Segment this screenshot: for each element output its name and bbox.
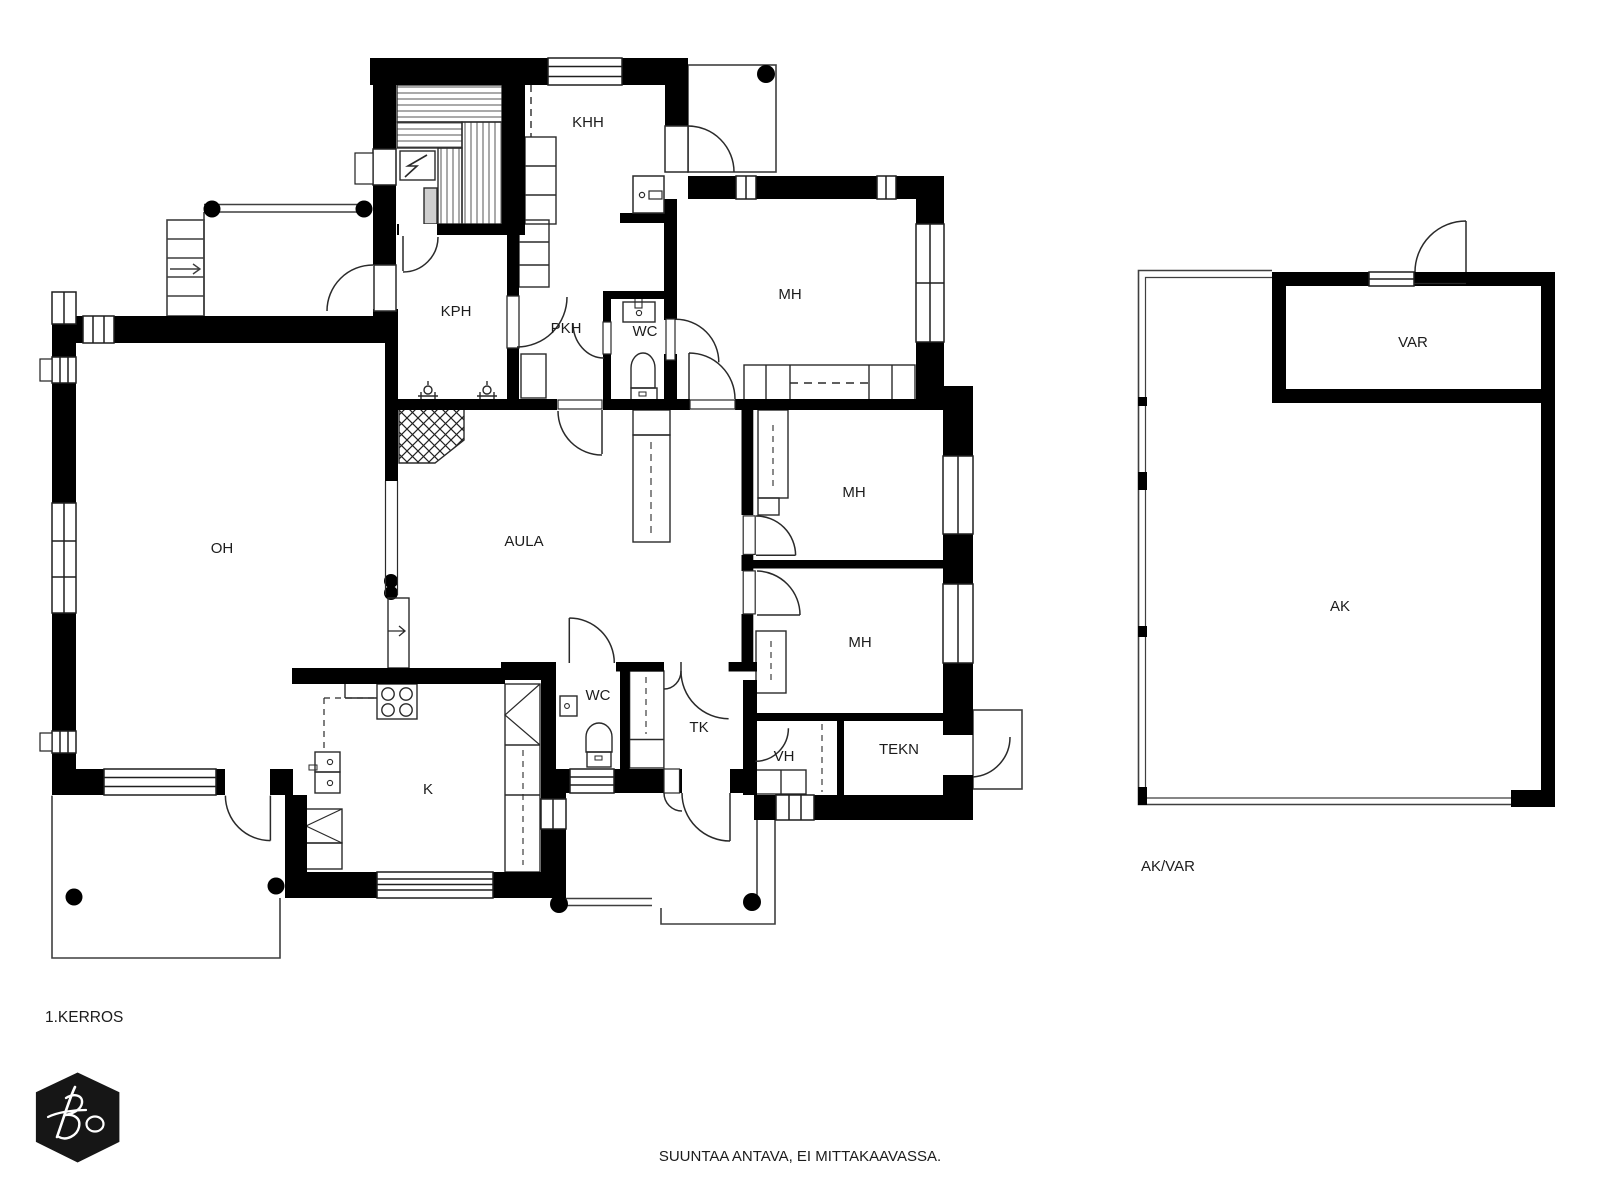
svg-text:AK: AK	[1330, 598, 1350, 615]
svg-text:WC: WC	[586, 687, 611, 704]
svg-text:OH: OH	[211, 540, 234, 557]
svg-text:TK: TK	[689, 719, 708, 736]
svg-text:VAR: VAR	[1398, 334, 1428, 351]
svg-text:KPH: KPH	[441, 303, 472, 320]
svg-text:1.KERROS: 1.KERROS	[45, 1009, 123, 1026]
svg-text:MH: MH	[848, 634, 871, 651]
svg-text:WC: WC	[633, 323, 658, 340]
svg-text:MH: MH	[778, 286, 801, 303]
svg-text:SUUNTAA ANTAVA, EI MITTAKAAVAS: SUUNTAA ANTAVA, EI MITTAKAAVASSA.	[659, 1148, 941, 1165]
svg-text:MH: MH	[842, 484, 865, 501]
svg-text:VH: VH	[774, 748, 795, 765]
svg-text:AK/VAR: AK/VAR	[1141, 858, 1195, 875]
svg-text:PKH: PKH	[551, 320, 582, 337]
svg-text:K: K	[423, 781, 433, 798]
svg-text:TEKN: TEKN	[879, 741, 919, 758]
svg-text:KHH: KHH	[572, 114, 604, 131]
svg-text:AULA: AULA	[504, 533, 543, 550]
